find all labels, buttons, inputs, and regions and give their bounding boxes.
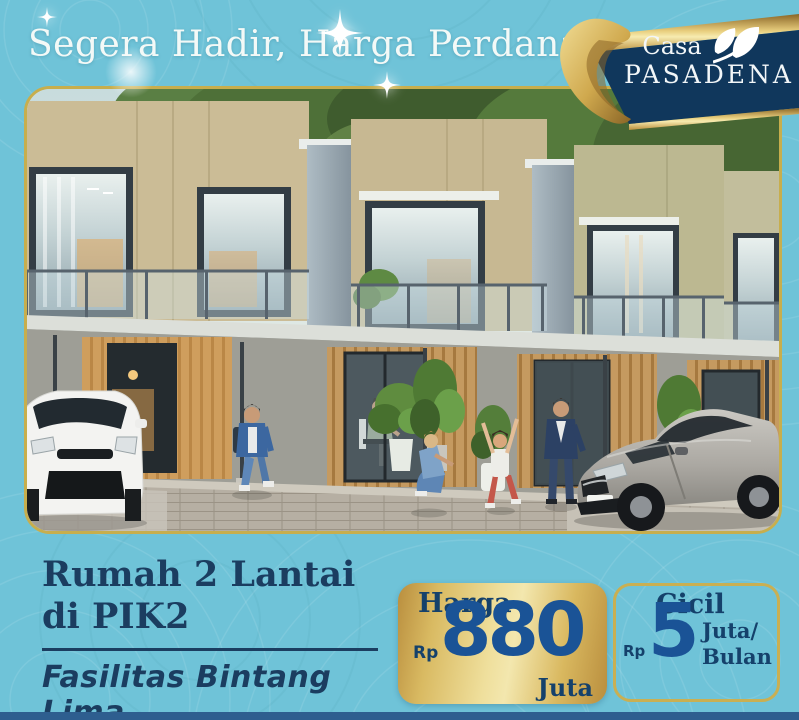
poster: Segera Hadir, Harga Perdana	[0, 0, 799, 720]
price-unit: Juta	[538, 673, 593, 702]
logo-name-line2: PASADENA	[623, 60, 795, 89]
offer-subtitle: Fasilitas Bintang Lima	[42, 660, 387, 720]
offer-block: Rumah 2 Lantai di PIK2 Fasilitas Bintang…	[42, 554, 387, 720]
price-amount: 880	[440, 593, 582, 667]
installment-badge: Cicil Rp 5 Juta/ Bulan	[613, 583, 780, 702]
hero-photo	[24, 86, 782, 534]
leaf-icon	[713, 26, 759, 64]
price-currency: Rp	[413, 643, 438, 663]
installment-unit-line1: Juta/	[702, 618, 772, 644]
price-badge: Harga Rp 880 Juta	[398, 583, 607, 704]
sparkle-glow-icon	[103, 44, 159, 100]
installment-unit: Juta/ Bulan	[702, 618, 772, 671]
offer-title-line2: di PIK2	[42, 596, 387, 638]
white-car	[27, 391, 147, 531]
offer-divider	[42, 648, 378, 651]
installment-currency: Rp	[623, 642, 645, 660]
offer-title: Rumah 2 Lantai di PIK2	[42, 554, 387, 638]
installment-amount: 5	[648, 594, 700, 668]
logo-name-line1: Casa	[617, 32, 727, 60]
bottom-bar	[0, 712, 799, 720]
pillar	[307, 145, 351, 327]
logo-banner: Casa PASADENA	[553, 0, 799, 132]
installment-unit-line2: Bulan	[702, 644, 772, 670]
townhouse-scene	[27, 89, 779, 531]
offer-title-line1: Rumah 2 Lantai	[42, 554, 387, 596]
